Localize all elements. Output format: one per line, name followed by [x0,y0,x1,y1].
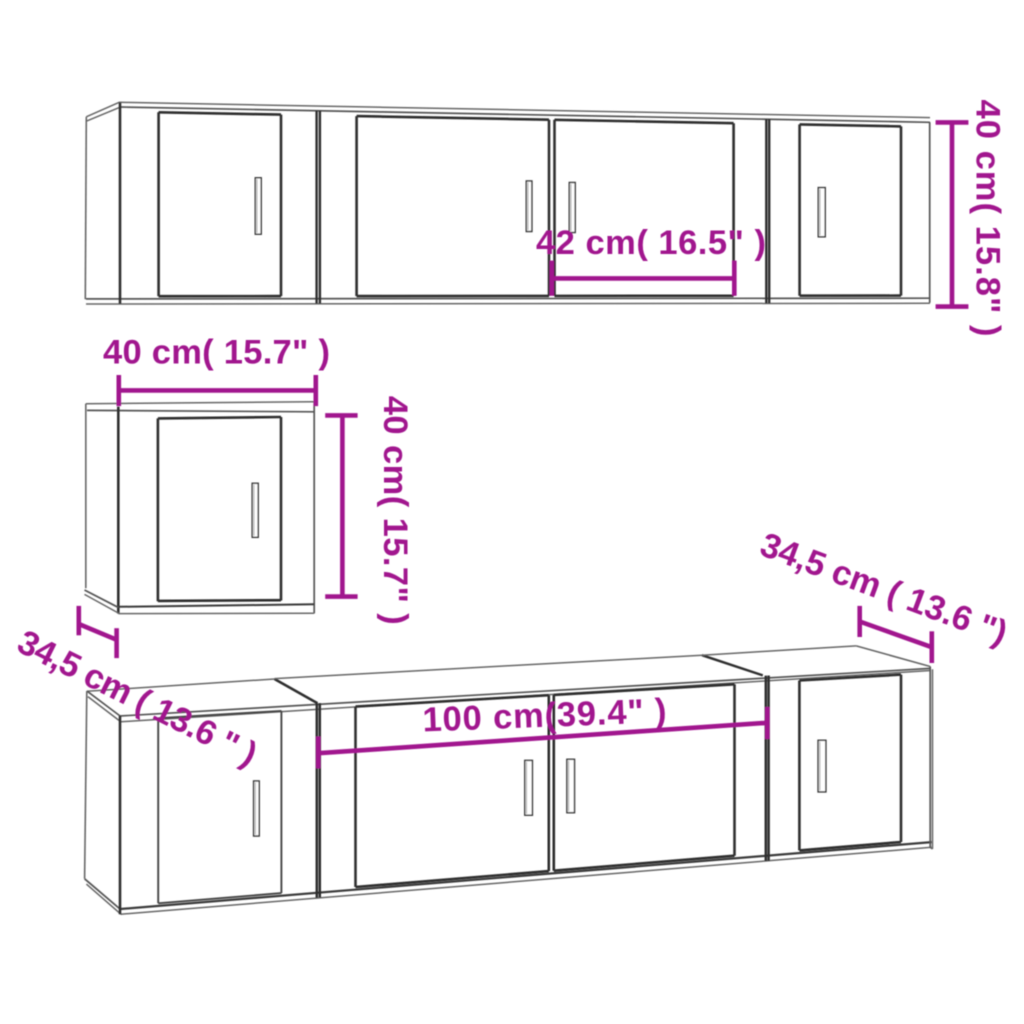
svg-text:40 cm( 15.7" ): 40 cm( 15.7" ) [103,334,330,372]
svg-text:40 cm( 15.7" ): 40 cm( 15.7" ) [376,396,414,625]
svg-text:42 cm( 16.5" ): 42 cm( 16.5" ) [536,224,766,262]
svg-text:40 cm( 15.8" ): 40 cm( 15.8" ) [969,99,1007,337]
